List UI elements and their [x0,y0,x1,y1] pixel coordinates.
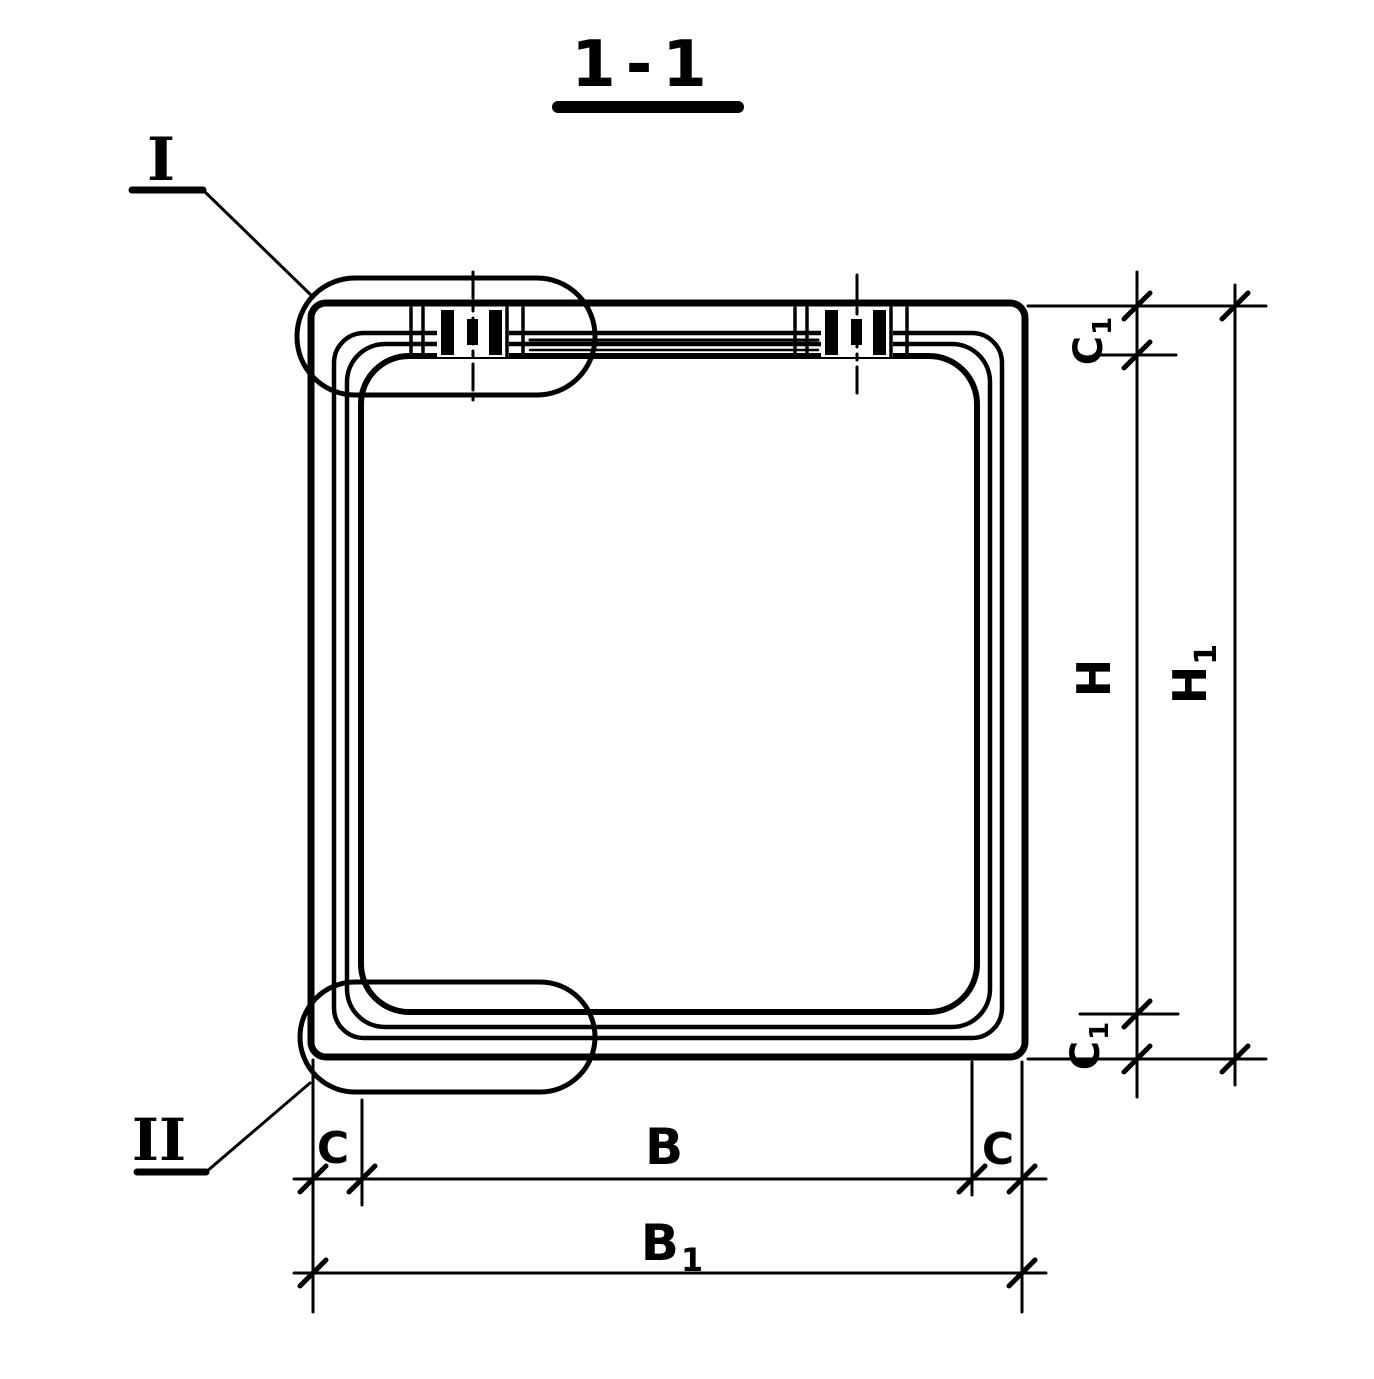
dimension-label-C-left: C [317,1123,349,1174]
detail-label-I: I [147,125,175,195]
detail-label-II: II [132,1106,186,1174]
section-drawing: 1-1 [0,0,1374,1379]
dimension-label-C-right: C [982,1124,1014,1175]
section-title: 1-1 [558,28,738,107]
joint-key-bar [441,310,454,355]
dimension-label-H: H [1067,659,1121,698]
joint-key-bar [873,310,886,355]
joint-key-bar [489,310,502,355]
dimension-label-B: B [645,1118,683,1176]
joint-key-bar [825,310,838,355]
section-title-text: 1-1 [571,28,717,102]
